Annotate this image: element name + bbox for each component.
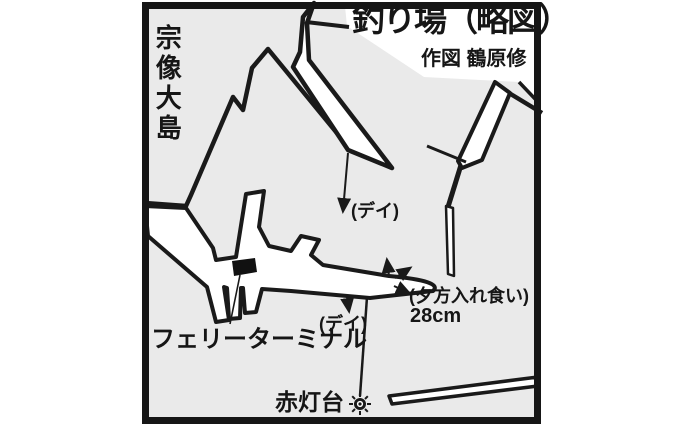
- map-title: 釣り場（略図）: [352, 3, 569, 38]
- map-canvas: [0, 0, 690, 427]
- breakwater-right-tip: [446, 206, 454, 276]
- island-label: 宗像大島: [153, 24, 180, 144]
- fish-size-label: 28cm: [410, 306, 461, 327]
- credit-label: 作図 鶴原修: [421, 49, 527, 70]
- fishing-map: 釣り場（略図） 作図 鶴原修 宗像大島 フェリーターミナル 赤灯台 (デイ) (…: [0, 0, 690, 427]
- red-lighthouse-label: 赤灯台: [275, 390, 344, 414]
- day-spot-label-upper: (デイ): [351, 202, 399, 221]
- day-spot-label-lower: (デイ): [319, 315, 367, 334]
- evening-spot-label: (夕方入れ食い): [409, 287, 529, 306]
- lighthouse-icon: [349, 393, 371, 415]
